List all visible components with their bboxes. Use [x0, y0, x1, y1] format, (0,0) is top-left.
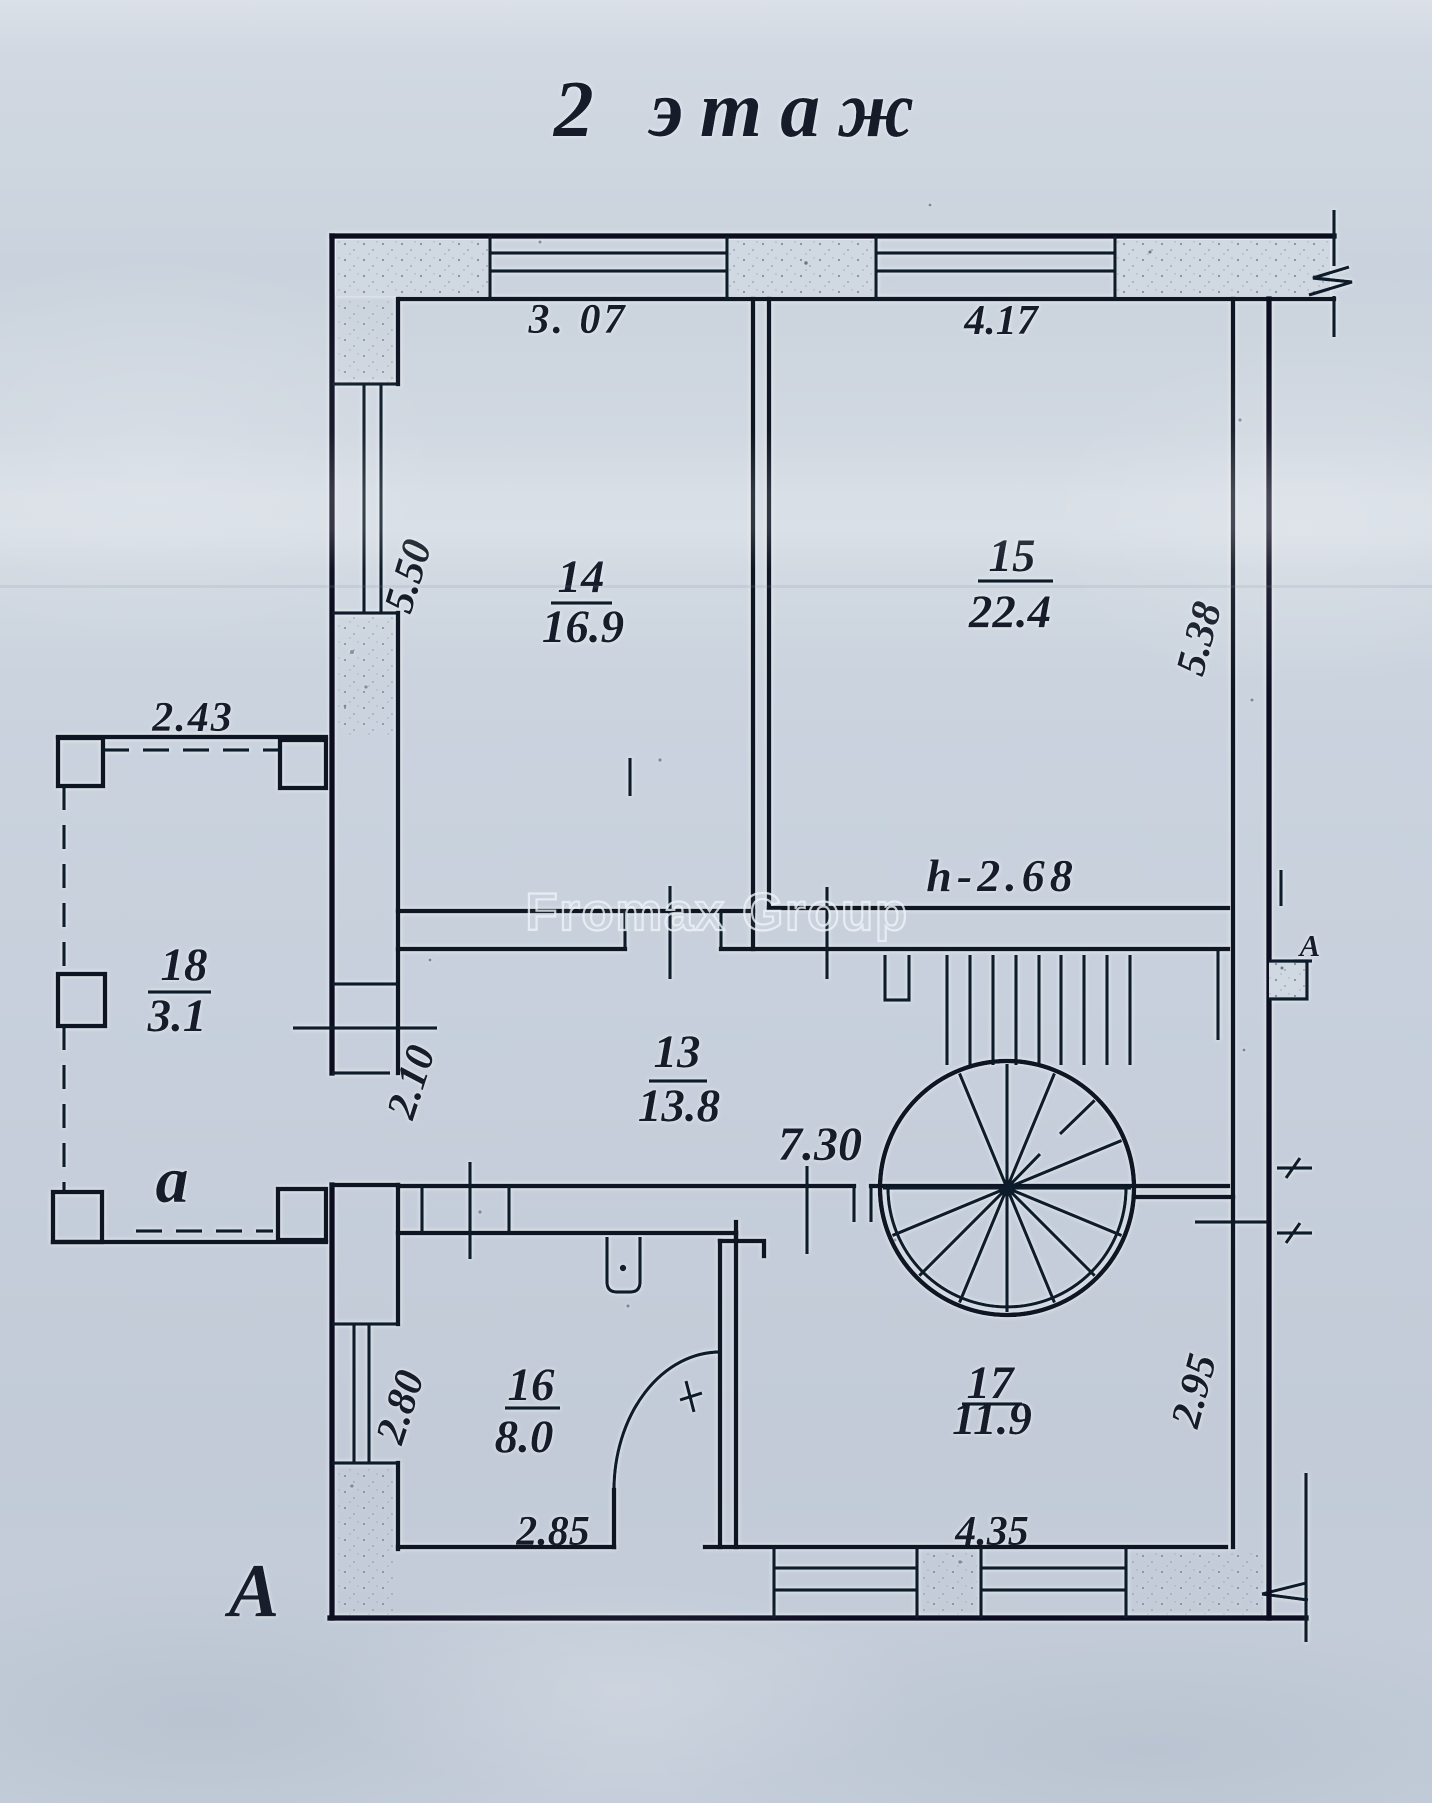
- svg-text:16: 16: [508, 1359, 556, 1411]
- svg-text:3.1: 3.1: [147, 990, 207, 1042]
- svg-text:13: 13: [654, 1026, 701, 1078]
- svg-text:11.9: 11.9: [952, 1393, 1032, 1445]
- svg-text:2.43: 2.43: [151, 695, 234, 741]
- svg-text:h-2.68: h-2.68: [926, 850, 1077, 901]
- svg-text:А: А: [1298, 928, 1321, 963]
- svg-text:Fromax Group: Fromax Group: [525, 883, 908, 942]
- svg-text:7.30: 7.30: [778, 1118, 862, 1171]
- svg-text:22.4: 22.4: [968, 586, 1051, 638]
- svg-text:a: a: [156, 1144, 189, 1217]
- svg-text:16.9: 16.9: [542, 601, 624, 653]
- svg-text:18: 18: [161, 939, 208, 991]
- svg-text:4.35: 4.35: [954, 1509, 1029, 1555]
- svg-text:2 этаж: 2 этаж: [553, 66, 933, 154]
- svg-text:2.85: 2.85: [515, 1509, 590, 1555]
- svg-text:13.8: 13.8: [638, 1080, 720, 1132]
- svg-text:8.0: 8.0: [495, 1411, 554, 1463]
- svg-text:3. 07: 3. 07: [528, 297, 628, 343]
- svg-text:4.17: 4.17: [963, 298, 1040, 344]
